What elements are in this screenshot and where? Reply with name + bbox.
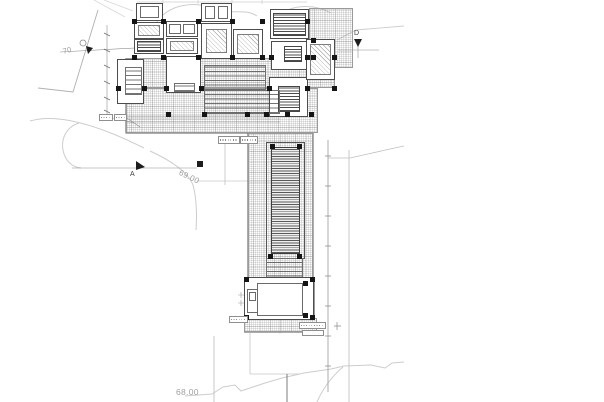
contour-label-68: 68.00 (176, 388, 199, 397)
central-steps-lower (204, 90, 280, 114)
column-marker (270, 144, 275, 149)
column-marker (230, 19, 235, 24)
room-center-2-inner (237, 34, 259, 54)
column-marker (305, 55, 310, 60)
column-marker (311, 55, 316, 60)
column-marker (166, 112, 171, 117)
column-marker (297, 144, 302, 149)
room-e-wing-inner (310, 44, 331, 75)
contour-hook (63, 123, 81, 168)
elevation-tag-2 (114, 114, 127, 121)
leader-east (328, 146, 404, 158)
elevation-tag-5 (229, 316, 248, 323)
cross-tick-se (334, 322, 341, 330)
column-marker (285, 112, 290, 117)
column-marker (305, 86, 310, 91)
elevation-tag-4 (240, 136, 258, 144)
section-marker-d-label: D (354, 30, 359, 37)
column-marker (264, 112, 269, 117)
room-nw-2-inner (138, 25, 160, 36)
pavilion-inner (257, 283, 303, 316)
room-e-2-inner (278, 86, 300, 112)
louver-block-ne-inner (273, 13, 306, 36)
room-e-1-inner (284, 46, 302, 62)
column-marker (260, 55, 265, 60)
column-marker (297, 254, 302, 259)
column-marker (309, 112, 314, 117)
column-marker (310, 277, 315, 282)
column-marker (268, 254, 273, 259)
arrow-section-d (354, 39, 362, 47)
central-steps-upper (204, 65, 266, 91)
column-marker (332, 86, 337, 91)
column-marker (311, 38, 316, 43)
column-marker (303, 313, 308, 318)
column-marker (196, 55, 201, 60)
column-marker (161, 55, 166, 60)
dim-node (197, 161, 203, 167)
room-nc-1-inner-a (205, 6, 215, 19)
contour-label-70: 70 (62, 46, 73, 55)
column-marker (196, 19, 201, 24)
column-marker (244, 277, 249, 282)
room-nw-1-inner (140, 6, 159, 18)
column-marker (332, 55, 337, 60)
closet-1 (169, 24, 181, 34)
court-room-band (174, 83, 195, 92)
column-marker (164, 86, 169, 91)
elevation-tag-7 (302, 330, 324, 336)
column-marker (269, 55, 274, 60)
grid-bubble-g (80, 40, 86, 46)
room-nc-1-inner-b (218, 6, 228, 19)
column-marker (161, 19, 166, 24)
closet-2 (183, 24, 195, 34)
column-marker (267, 86, 272, 91)
column-marker (260, 19, 265, 24)
column-marker (116, 86, 121, 91)
pavilion-room-w-inner (249, 292, 256, 301)
elevation-tag-3 (218, 136, 240, 144)
elevation-tag-1 (99, 114, 113, 121)
line-south-2 (250, 333, 299, 374)
column-marker (245, 112, 250, 117)
column-marker (132, 19, 137, 24)
column-marker (132, 55, 137, 60)
contour-69 (150, 151, 197, 230)
elevation-tag-6 (299, 322, 326, 329)
room-center-1-inner (206, 29, 227, 53)
room-w-wing-inner (125, 67, 142, 95)
nw-diag-2 (104, 0, 133, 11)
column-marker (199, 86, 204, 91)
column-marker (310, 315, 315, 320)
contour-68 (185, 362, 404, 396)
room-nw-3-inner (137, 41, 161, 52)
contour-68-branch (317, 367, 343, 402)
section-marker-a-label: A (130, 171, 135, 178)
nw-diag-1 (94, 0, 125, 17)
site-plan-canvas: 69.0068.0070AD (0, 0, 604, 402)
arrow-section-a (136, 161, 145, 170)
column-marker (230, 55, 235, 60)
reflecting-pool (271, 147, 300, 254)
room-n-2-inner (170, 41, 194, 51)
column-marker (303, 281, 308, 286)
column-marker (202, 112, 207, 117)
column-marker (142, 86, 147, 91)
column-marker (305, 19, 310, 24)
